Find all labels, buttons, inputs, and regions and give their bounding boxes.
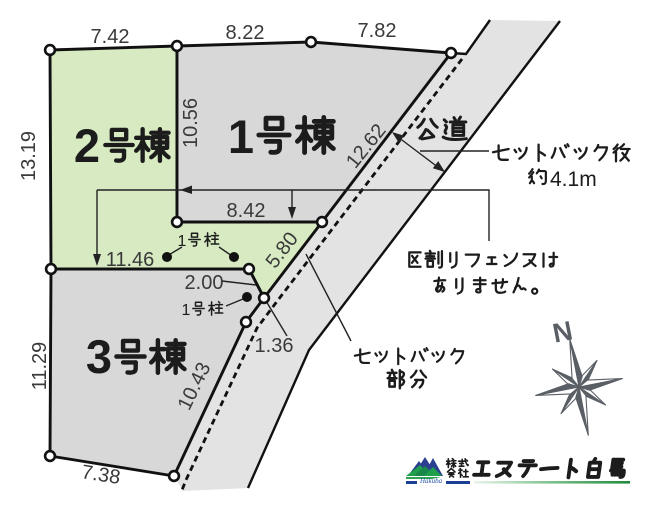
svg-text:2.00: 2.00 [185, 272, 224, 294]
svg-text:7.42: 7.42 [91, 26, 130, 48]
svg-text:11.29: 11.29 [29, 342, 51, 391]
svg-text:10.56: 10.56 [180, 98, 202, 148]
svg-text:3: 3 [86, 330, 112, 383]
svg-text:Hakuba: Hakuba [419, 477, 443, 485]
svg-text:8.42: 8.42 [227, 200, 266, 222]
svg-text:1: 1 [228, 110, 254, 163]
svg-text:13.19: 13.19 [18, 131, 40, 181]
svg-text:7.82: 7.82 [358, 20, 397, 42]
svg-text:2: 2 [74, 119, 100, 172]
svg-text:N: N [550, 315, 575, 348]
svg-text:1: 1 [178, 233, 187, 250]
svg-text:7.38: 7.38 [80, 461, 122, 489]
svg-text:11.46: 11.46 [106, 249, 155, 271]
svg-text:4.1m: 4.1m [550, 168, 597, 191]
svg-text:1: 1 [182, 302, 191, 319]
svg-text:8.22: 8.22 [226, 22, 265, 44]
svg-text:1.36: 1.36 [255, 335, 294, 357]
